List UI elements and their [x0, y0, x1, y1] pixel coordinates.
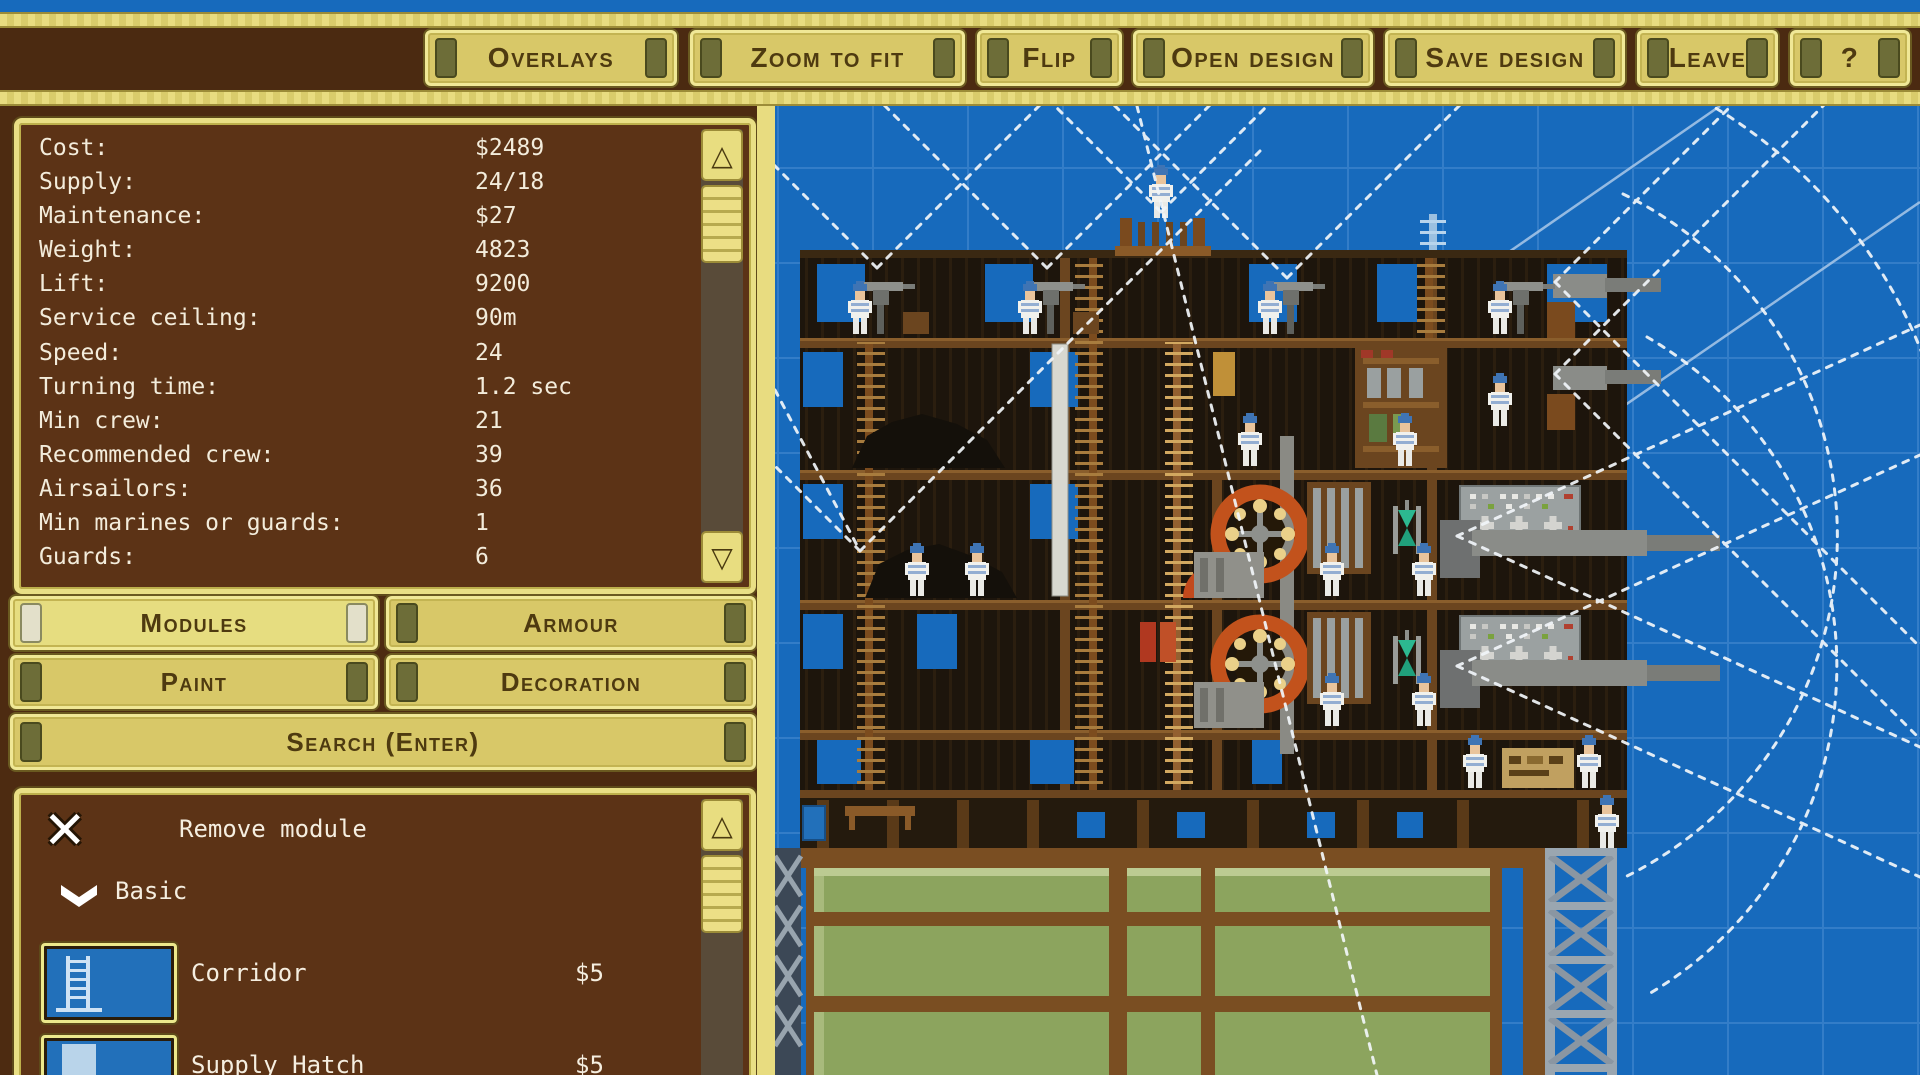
red-canister [1140, 622, 1156, 662]
tab-decoration[interactable]: Decoration [386, 655, 756, 709]
zoom-to-fit-button-label: Zoom to fit [750, 44, 904, 72]
water-barrel [803, 806, 825, 840]
module-scroll-up-button[interactable]: △ [701, 799, 743, 851]
stat-value-turning-time: 1.2 sec [475, 370, 572, 404]
designer-side-panel: Cost:$2489 Supply:24/18 Maintenance:$27 … [0, 106, 757, 1075]
tab-armour[interactable]: Armour [386, 596, 756, 650]
supply-hatch-icon [62, 1044, 96, 1075]
tab-modules[interactable]: Modules [10, 596, 378, 650]
tab-armour-label: Armour [523, 610, 619, 636]
save-design-button-label: Save design [1425, 44, 1584, 72]
module-thumb-corridor[interactable] [41, 943, 177, 1023]
airship-hull[interactable] [800, 165, 1720, 848]
stat-row-airsailors: Airsailors:36 [39, 472, 344, 506]
module-price-supply-hatch: $5 [575, 1051, 604, 1075]
stat-value-cost: $2489 [475, 131, 544, 165]
scroll-up-icon: △ [711, 139, 733, 172]
stat-value-service-ceiling: 90m [475, 301, 517, 335]
stat-row-service-ceiling: Service ceiling:90m [39, 301, 344, 335]
overlays-button[interactable]: Overlays [425, 30, 677, 86]
stat-value-recommended-crew: 39 [475, 438, 503, 472]
help-button[interactable]: ? [1790, 30, 1910, 86]
module-list-panel: ✕ Remove module Basic Corridor $5 Supply… [14, 788, 756, 1075]
ladder [1165, 342, 1193, 790]
stat-row-weight: Weight:4823 [39, 233, 344, 267]
red-canister [1160, 622, 1176, 662]
stat-row-min-crew: Min crew:21 [39, 404, 344, 438]
leave-button[interactable]: Leave [1637, 30, 1778, 86]
stat-value-speed: 24 [475, 336, 503, 370]
stat-value-weight: 4823 [475, 233, 530, 267]
scaffold-tower-right [1523, 848, 1617, 1075]
stat-row-guards: Guards:6 [39, 540, 344, 574]
chevron-down-icon[interactable] [61, 885, 97, 907]
frame-band-toolbar-bottom [0, 90, 1920, 106]
stat-value-airsailors: 36 [475, 472, 503, 506]
ladder [1075, 258, 1103, 790]
stat-row-cost: Cost:$2489 [39, 131, 344, 165]
deck-ladder-icon [1420, 214, 1446, 250]
stat-row-turning-time: Turning time:1.2 sec [39, 370, 344, 404]
tab-modules-label: Modules [140, 610, 247, 636]
remove-module-icon[interactable]: ✕ [43, 801, 87, 861]
stats-scroll-up-button[interactable]: △ [701, 129, 743, 181]
ship-stats-list: Cost:$2489 Supply:24/18 Maintenance:$27 … [39, 131, 344, 574]
stat-value-supply: 24/18 [475, 165, 544, 199]
remove-module-label[interactable]: Remove module [179, 815, 367, 843]
module-name-supply-hatch[interactable]: Supply Hatch [191, 1051, 364, 1075]
crows-nest [1115, 218, 1211, 256]
search-button[interactable]: Search (Enter) [10, 714, 756, 770]
zoom-to-fit-button[interactable]: Zoom to fit [690, 30, 965, 86]
stat-value-maintenance: $27 [475, 199, 517, 233]
stat-row-speed: Speed:24 [39, 336, 344, 370]
stat-value-lift: 9200 [475, 267, 530, 301]
module-scrollbar-thumb[interactable] [701, 855, 743, 933]
module-name-corridor[interactable]: Corridor [191, 959, 307, 987]
leave-button-label: Leave [1669, 44, 1747, 72]
save-design-button[interactable]: Save design [1385, 30, 1625, 86]
stat-value-min-marines: 1 [475, 506, 489, 540]
nav-console [1502, 748, 1574, 788]
flip-button-label: Flip [1022, 44, 1076, 72]
overlays-button-label: Overlays [488, 44, 614, 72]
stats-scroll-down-button[interactable]: ▽ [701, 531, 743, 583]
module-thumb-supply-hatch[interactable] [41, 1035, 177, 1075]
stats-scrollbar-thumb[interactable] [701, 185, 743, 263]
help-button-label: ? [1841, 44, 1860, 72]
airship-blueprint [775, 106, 1920, 1075]
tab-paint[interactable]: Paint [10, 655, 378, 709]
stat-value-min-crew: 21 [475, 404, 503, 438]
main-toolbar: Overlays Zoom to fit Flip Open design Sa… [0, 28, 1920, 90]
scroll-down-icon: ▽ [711, 541, 733, 574]
stat-row-maintenance: Maintenance:$27 [39, 199, 344, 233]
stat-row-supply: Supply:24/18 [39, 165, 344, 199]
stat-row-recommended-crew: Recommended crew:39 [39, 438, 344, 472]
module-price-corridor: $5 [575, 959, 604, 987]
stat-value-guards: 6 [475, 540, 489, 574]
corridor-ladder-icon [44, 946, 174, 1020]
scroll-up-icon: △ [711, 809, 733, 842]
blueprint-canvas[interactable] [757, 106, 1920, 1075]
stat-row-lift: Lift:9200 [39, 267, 344, 301]
flip-button[interactable]: Flip [977, 30, 1122, 86]
gas-cells[interactable] [800, 848, 1545, 1075]
white-mast [1052, 344, 1068, 596]
cabin-door [1213, 352, 1235, 396]
gas-valve [1393, 500, 1421, 554]
airship-designer-screen: Overlays Zoom to fit Flip Open design Sa… [0, 0, 1920, 1075]
open-design-button-label: Open design [1171, 44, 1335, 72]
tab-decoration-label: Decoration [501, 669, 641, 695]
tab-paint-label: Paint [161, 669, 228, 695]
ladder [1417, 258, 1445, 338]
frame-band-top [0, 12, 1920, 28]
stat-row-min-marines: Min marines or guards:1 [39, 506, 344, 540]
ship-stats-panel: Cost:$2489 Supply:24/18 Maintenance:$27 … [14, 118, 756, 594]
scaffold-tower-left [775, 848, 801, 1075]
gas-valve [1393, 630, 1421, 684]
module-group-basic-label[interactable]: Basic [115, 877, 187, 905]
open-design-button[interactable]: Open design [1133, 30, 1373, 86]
search-button-label: Search (Enter) [286, 729, 479, 755]
